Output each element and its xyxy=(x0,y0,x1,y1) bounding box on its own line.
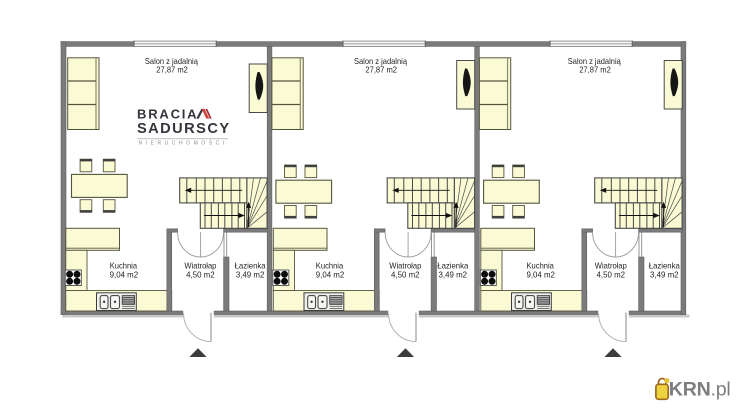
svg-text:9,04 m2: 9,04 m2 xyxy=(526,270,555,280)
svg-text:27,87 m2: 27,87 m2 xyxy=(365,65,397,75)
svg-text:9,04 m2: 9,04 m2 xyxy=(110,270,139,280)
svg-text:4,50 m2: 4,50 m2 xyxy=(186,270,215,280)
svg-text:27,87 m2: 27,87 m2 xyxy=(579,65,611,75)
svg-text:4,50 m2: 4,50 m2 xyxy=(391,270,420,280)
svg-text:27,87 m2: 27,87 m2 xyxy=(156,65,188,75)
svg-text:9,04 m2: 9,04 m2 xyxy=(316,270,345,280)
svg-text:3,49 m2: 3,49 m2 xyxy=(236,270,265,280)
svg-text:3,49 m2: 3,49 m2 xyxy=(650,270,679,280)
svg-text:SADURSCY: SADURSCY xyxy=(137,121,231,137)
svg-text:BRACIA: BRACIA xyxy=(137,107,198,122)
svg-text:4,50 m2: 4,50 m2 xyxy=(597,270,626,280)
svg-text:3,49 m2: 3,49 m2 xyxy=(439,270,468,280)
svg-text:NIERUCHOMOŚCI: NIERUCHOMOŚCI xyxy=(139,138,228,146)
svg-text:KRN.pl: KRN.pl xyxy=(669,379,731,401)
